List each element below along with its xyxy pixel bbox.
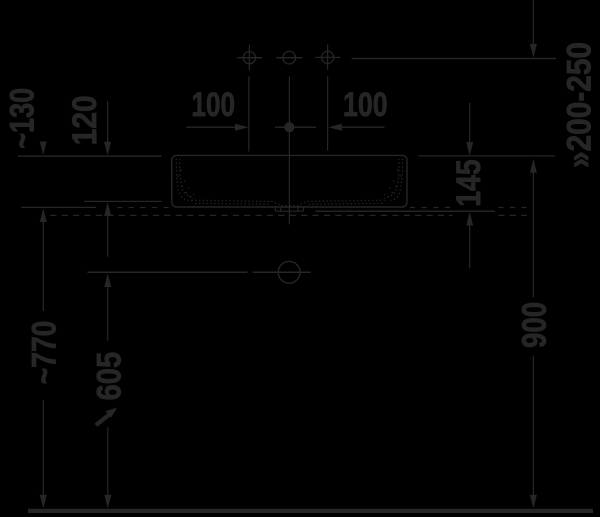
svg-text:900: 900 [516,302,554,348]
svg-text:145: 145 [450,159,488,207]
svg-text:~130: ~130 [4,88,42,149]
svg-text:»200-250: »200-250 [561,42,599,168]
svg-text:100: 100 [343,86,388,124]
svg-text:~770: ~770 [25,321,63,385]
svg-text:100: 100 [192,86,236,124]
svg-text:605: 605 [90,352,128,401]
svg-text:120: 120 [66,95,104,145]
